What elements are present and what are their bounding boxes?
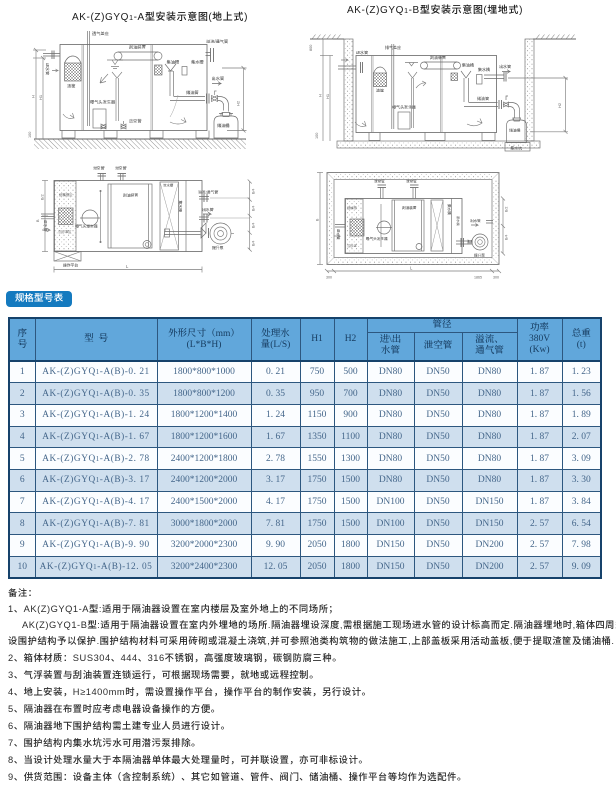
svg-text:曝气头发生器: 曝气头发生器 [366,236,388,241]
svg-text:100: 100 [315,133,319,139]
svg-text:沉砂渣: 沉砂渣 [347,243,357,248]
svg-text:1865: 1865 [474,276,482,280]
svg-text:集水坑: 集水坑 [511,146,523,151]
svg-text:H: H [31,95,36,98]
svg-text:进水管: 进水管 [355,50,368,55]
svg-text:溢流/通气管: 溢流/通气管 [198,190,218,195]
svg-text:刮油装置: 刮油装置 [430,55,446,60]
svg-text:储油桶: 储油桶 [216,123,230,128]
svg-text:渣筐: 渣筐 [376,88,384,93]
svg-text:提升泵: 提升泵 [211,245,224,250]
svg-text:集水槽: 集水槽 [178,201,183,213]
svg-text:B/4: B/4 [252,189,256,194]
svg-text:H: H [318,94,323,97]
svg-text:泄空管: 泄空管 [373,179,385,184]
svg-text:储油管: 储油管 [185,90,199,95]
svg-text:集油槽: 集油槽 [167,60,180,65]
svg-text:细格栅区: 细格栅区 [59,192,73,197]
svg-text:出水管: 出水管 [212,76,225,81]
svg-text:集水槽: 集水槽 [478,67,490,72]
svg-text:提升泵: 提升泵 [473,253,485,258]
svg-text:B/2: B/2 [505,207,509,212]
svg-text:细格栅: 细格栅 [347,205,357,210]
svg-text:B/2: B/2 [41,194,45,200]
svg-text:L: L [126,264,129,269]
svg-text:出水管: 出水管 [499,64,511,69]
svg-text:进水管: 进水管 [45,62,50,75]
svg-text:排气盖座: 排气盖座 [384,44,401,50]
svg-text:H2: H2 [557,102,562,108]
svg-text:储油桶: 储油桶 [508,128,521,133]
svg-text:泄空管: 泄空管 [115,166,127,171]
svg-text:透气盖座: 透气盖座 [91,30,109,37]
svg-text:刮油装置: 刮油装置 [402,205,417,210]
svg-text:B: B [36,219,40,222]
svg-text:曝气头发生器: 曝气头发生器 [90,100,116,105]
svg-text:出水管: 出水管 [202,207,214,212]
svg-text:300: 300 [326,276,332,280]
svg-text:集水槽: 集水槽 [191,60,204,65]
svg-text:L: L [410,266,413,271]
svg-text:渣筐: 渣筐 [67,84,76,89]
svg-text:集水槽: 集水槽 [447,204,452,215]
svg-text:出水管: 出水管 [470,218,481,223]
svg-text:H2: H2 [236,100,241,106]
svg-text:刮油装置: 刮油装置 [129,45,146,50]
svg-text:进水管: 进水管 [336,228,341,240]
svg-text:沉砂渣区: 沉砂渣区 [58,229,72,234]
svg-text:B/4: B/4 [252,223,256,228]
svg-text:300: 300 [493,276,499,280]
svg-text:H1: H1 [38,94,43,100]
svg-text:800: 800 [309,45,313,51]
svg-text:储油管: 储油管 [476,96,489,101]
svg-text:操作平台: 操作平台 [62,263,78,268]
svg-text:100: 100 [28,132,32,138]
svg-text:H1: H1 [325,93,330,99]
svg-text:B/4: B/4 [505,235,509,240]
svg-text:B: B [316,218,320,221]
svg-text:放空管: 放空管 [129,118,142,125]
svg-text:曝气头发生器: 曝气头发生器 [75,224,98,229]
svg-text:溢流/通气管: 溢流/通气管 [206,39,228,44]
svg-text:集油槽: 集油槽 [462,63,474,68]
svg-text:泄空管: 泄空管 [405,179,417,184]
svg-text:刮油装置: 刮油装置 [123,193,138,198]
svg-text:泄空管: 泄空管 [93,166,105,171]
svg-text:泄水槽: 泄水槽 [162,183,174,188]
svg-text:B/4: B/4 [252,241,256,246]
svg-text:曝气头发生器: 曝气头发生器 [392,105,417,110]
svg-text:泵水槽: 泵水槽 [456,216,460,226]
svg-text:B/4: B/4 [252,206,256,211]
